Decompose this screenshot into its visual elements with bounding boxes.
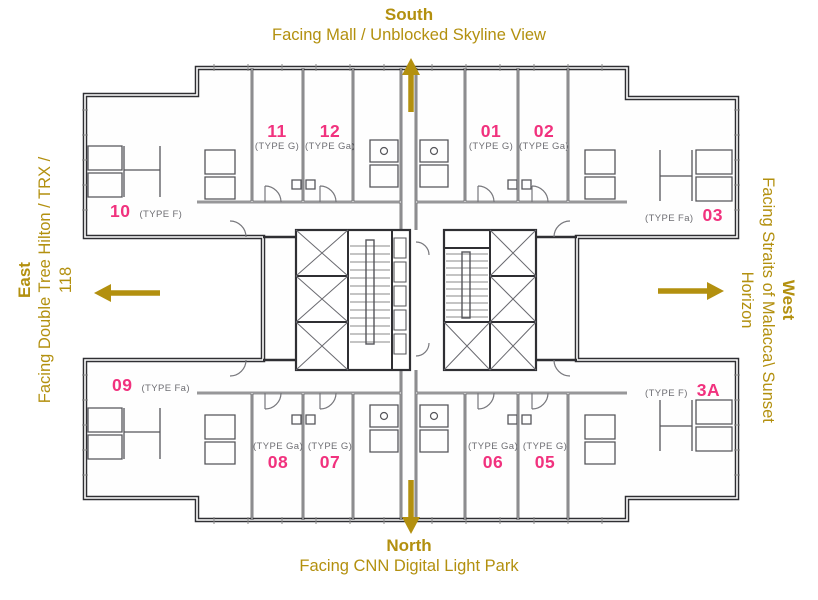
compass-east-facing-line2: 118	[56, 70, 77, 490]
unit-number: 06	[468, 453, 518, 471]
unit-label-01: 01 (TYPE G)	[469, 122, 513, 153]
unit-number: 02	[519, 122, 569, 140]
unit-number: 11	[255, 122, 299, 140]
unit-number: 3A	[697, 381, 720, 399]
unit-label-03: (TYPE Fa) 03	[645, 206, 723, 225]
compass-north: North Facing CNN Digital Light Park	[0, 535, 818, 577]
unit-number: 09	[112, 376, 132, 394]
compass-east-facing-line1: Facing Double Tree Hilton / TRX /	[35, 70, 56, 490]
compass-east: East Facing Double Tree Hilton / TRX / 1…	[14, 70, 80, 490]
unit-type: (TYPE Fa)	[645, 212, 693, 225]
compass-north-title: North	[0, 535, 818, 556]
unit-label-02: 02 (TYPE Ga)	[519, 122, 569, 153]
unit-type: (TYPE G)	[255, 140, 299, 153]
compass-south-facing: Facing Mall / Unblocked Skyline View	[0, 25, 818, 46]
north-arrow-icon	[401, 480, 421, 534]
unit-type: (TYPE Ga)	[305, 140, 355, 153]
unit-label-05: (TYPE G) 05	[523, 440, 567, 471]
compass-west-title: West	[778, 90, 799, 510]
compass-north-facing: Facing CNN Digital Light Park	[0, 556, 818, 577]
east-arrow-icon	[94, 283, 160, 303]
unit-type: (TYPE F)	[139, 208, 182, 221]
unit-number: 03	[702, 206, 722, 224]
unit-number: 05	[523, 453, 567, 471]
unit-label-3A: (TYPE F) 3A	[645, 381, 720, 400]
unit-label-12: 12 (TYPE Ga)	[305, 122, 355, 153]
south-arrow-icon	[401, 58, 421, 112]
unit-label-09: 09 (TYPE Fa)	[112, 376, 190, 395]
unit-number: 08	[253, 453, 303, 471]
unit-label-06: (TYPE Ga) 06	[468, 440, 518, 471]
west-arrow-icon	[658, 281, 724, 301]
unit-type: (TYPE Ga)	[519, 140, 569, 153]
compass-east-title: East	[14, 70, 35, 490]
unit-number: 12	[305, 122, 355, 140]
compass-west-facing-line1: Facing Straits of Malacca\ Sunset	[757, 90, 778, 510]
unit-type: (TYPE Fa)	[141, 382, 189, 395]
unit-label-08: (TYPE Ga) 08	[253, 440, 303, 471]
compass-west-facing-line2: Horizon	[736, 90, 757, 510]
unit-number: 07	[308, 453, 352, 471]
unit-label-11: 11 (TYPE G)	[255, 122, 299, 153]
compass-south: South Facing Mall / Unblocked Skyline Vi…	[0, 4, 818, 46]
unit-type: (TYPE F)	[645, 387, 688, 400]
unit-number: 01	[469, 122, 513, 140]
floor-plan-page: South Facing Mall / Unblocked Skyline Vi…	[0, 0, 818, 600]
unit-type: (TYPE G)	[469, 140, 513, 153]
compass-south-title: South	[0, 4, 818, 25]
unit-label-10: 10 (TYPE F)	[110, 202, 182, 221]
unit-label-07: (TYPE G) 07	[308, 440, 352, 471]
compass-west: West Facing Straits of Malacca\ Sunset H…	[733, 90, 799, 510]
unit-number: 10	[110, 202, 130, 220]
